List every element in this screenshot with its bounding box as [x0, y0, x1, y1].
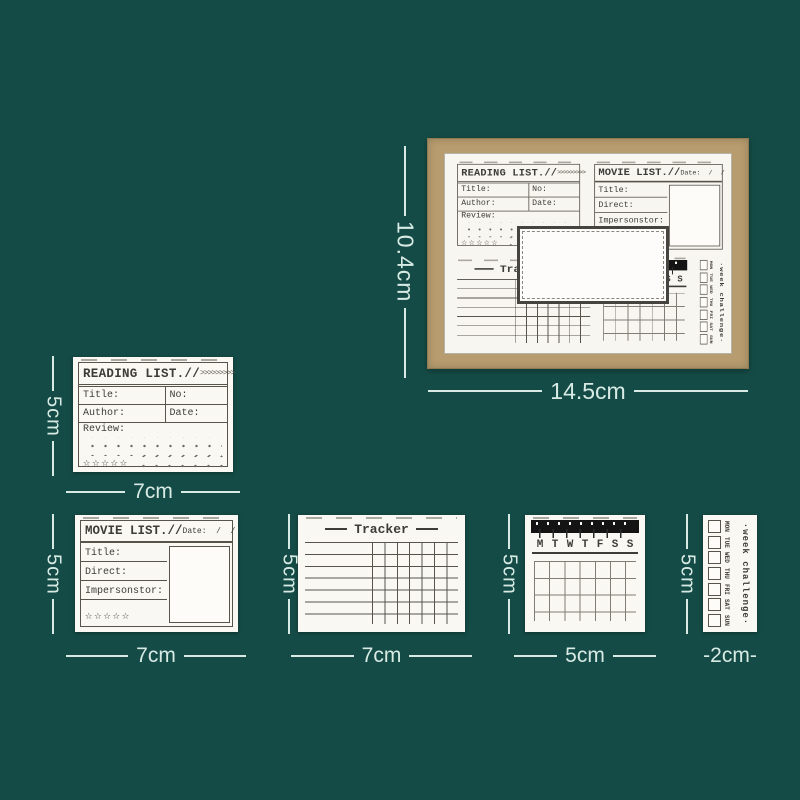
checkbox-icon [708, 520, 721, 533]
week-day-rail: MON TUE WED THU FRI [700, 260, 714, 345]
author-field-label: Author: [79, 405, 166, 422]
measure-line [686, 514, 688, 549]
title-field-label: Title: [458, 183, 529, 196]
measure-line [52, 356, 54, 391]
calendar-day-label: S [625, 539, 635, 551]
checkbox-icon [700, 322, 708, 332]
movie-list-title: MOVIE LIST.// [85, 524, 183, 538]
week-day-label: MON [723, 521, 730, 532]
arrows-icon: >>>>>>>>> [557, 169, 585, 176]
tracker-width-label: 7cm [354, 644, 410, 668]
checkbox-icon [708, 536, 721, 549]
blank-label-box [517, 226, 669, 304]
week-challenge-title: ·week challenge· [740, 522, 750, 624]
measure-line [291, 655, 354, 657]
reading-list-title: READING LIST.// [461, 167, 557, 178]
blank-label-box-inner-border [522, 231, 664, 299]
movie-list-stamp: MOVIE LIST.// Date: / / Title: Direct: I… [75, 515, 238, 632]
week-height-measure: 5cm [670, 514, 704, 634]
week-day-label: TUE [709, 273, 713, 282]
title-no-row: Title: No: [79, 387, 227, 405]
week-day-row: SAT [708, 598, 732, 611]
calendar-grid [534, 561, 636, 621]
title-field-label: Title: [81, 543, 167, 562]
checkbox-icon [708, 551, 721, 564]
week-day-label: WED [723, 552, 730, 563]
board-height-measure: 10.4cm [388, 146, 422, 378]
tracker-grid [305, 542, 458, 624]
tracker-grid-columns [372, 542, 458, 624]
calendar-binding-bar [531, 520, 639, 533]
week-day-row: TUE [700, 272, 714, 282]
movie-list-title: MOVIE LIST.// [598, 167, 680, 178]
checkbox-icon [700, 334, 708, 344]
tracker-height-measure: 5cm [272, 514, 306, 634]
checkbox-icon [708, 583, 721, 596]
calendar-day-label: S [676, 275, 684, 285]
measure-line [686, 599, 688, 634]
week-day-label: THU [723, 568, 730, 579]
calendar-day-label: T [550, 539, 560, 551]
calendar-day-label: M [535, 539, 545, 551]
checkbox-icon [708, 614, 721, 627]
measure-line [404, 146, 406, 216]
reading-width-measure: 7cm [66, 477, 240, 507]
week-challenge-stamp: MON TUE WED THU FRI SAT SUN ·week challe… [703, 515, 757, 632]
date-field-label: Date: / / [680, 169, 724, 176]
calendar-width-measure: 5cm [514, 641, 656, 671]
arrows-icon: >>>>>>>>> [200, 369, 234, 378]
board-height-label: 10.4cm [392, 216, 419, 307]
calendar-stamp: MTWTFSS [525, 515, 645, 632]
week-challenge-title: ·week challenge· [718, 262, 724, 343]
tracker-width-measure: 7cm [291, 641, 472, 671]
week-day-label: FRI [723, 584, 730, 595]
calendar-day-label: F [595, 539, 605, 551]
tracker-title: Tracker [354, 522, 409, 537]
week-day-row: FRI [708, 583, 732, 596]
measure-line [52, 514, 54, 549]
checkbox-icon [700, 297, 708, 307]
week-day-row: THU [700, 297, 714, 307]
tracker-height-label: 5cm [278, 549, 301, 600]
week-day-row: WED [708, 551, 732, 564]
display-board-frame: READING LIST.// >>>>>>>>> Title: No: Aut… [427, 138, 749, 369]
movie-width-measure: 7cm [66, 641, 246, 671]
no-field-label: No: [166, 387, 227, 404]
product-photo: READING LIST.// >>>>>>>>> Title: No: Aut… [0, 0, 800, 800]
measure-line [409, 655, 472, 657]
measure-line [184, 655, 246, 657]
reading-width-label: 7cm [125, 480, 181, 504]
reading-height-measure: 5cm [36, 356, 70, 476]
checkbox-icon [708, 567, 721, 580]
week-challenge-stamp: MON TUE WED THU FRI [697, 256, 728, 348]
week-height-label: 5cm [676, 549, 699, 600]
checkbox-icon [700, 309, 708, 319]
review-field-label: Review: [458, 211, 579, 222]
measure-line [428, 390, 542, 392]
title-field-label: Title: [79, 387, 166, 404]
week-day-rail: MON TUE WED THU FRI SAT SUN [708, 520, 732, 627]
star-rating-icons: ☆☆☆☆☆ [83, 455, 129, 470]
checkbox-icon [700, 285, 708, 295]
title-no-row: Title: No: [458, 183, 579, 197]
checkbox-icon [700, 272, 708, 282]
week-day-row: WED [700, 285, 714, 295]
measure-line [52, 599, 54, 634]
calendar-day-label: W [565, 539, 575, 551]
measure-line [52, 441, 54, 476]
author-date-row: Author: Date: [458, 197, 579, 211]
measure-line [66, 655, 128, 657]
calendar-width-label: 5cm [557, 644, 613, 668]
week-width-measure: -2cm- [690, 641, 770, 671]
calendar-day-label: T [580, 539, 590, 551]
calendar-height-label: 5cm [498, 549, 521, 600]
week-day-label: MON [709, 261, 713, 270]
no-field-label: No: [529, 183, 579, 196]
week-day-row: SAT [700, 322, 714, 332]
author-date-row: Author: Date: [79, 405, 227, 423]
date-field-label: Date: [529, 197, 579, 210]
week-day-label: TUE [723, 537, 730, 548]
week-day-label: SUN [709, 335, 713, 344]
week-day-row: TUE [708, 536, 732, 549]
dash-decoration [475, 268, 494, 270]
calendar-height-measure: 5cm [492, 514, 526, 634]
week-day-label: THU [709, 298, 713, 307]
week-day-row: MON [708, 520, 732, 533]
measure-line [508, 599, 510, 634]
week-day-row: SUN [700, 334, 714, 344]
measure-line [514, 655, 557, 657]
star-rating-icons: ☆☆☆☆☆ [461, 236, 499, 248]
impersonator-field-label: Impersonstor: [81, 581, 167, 600]
board-week-challenge-section: MON TUE WED THU FRI [697, 256, 728, 348]
week-day-row: FRI [700, 309, 714, 319]
week-day-row: MON [700, 260, 714, 270]
direct-field-label: Direct: [81, 562, 167, 581]
board-sheet: READING LIST.// >>>>>>>>> Title: No: Aut… [444, 153, 732, 354]
measure-line [288, 599, 290, 634]
reading-list-stamp: READING LIST.// >>>>>>>>> Title: No: Aut… [73, 357, 233, 472]
measure-line [66, 491, 125, 493]
reading-list-title: READING LIST.// [83, 367, 200, 381]
tracker-stamp: Tracker [298, 515, 465, 632]
poster-box [669, 185, 720, 247]
review-field-label: Review: [79, 423, 227, 437]
board-width-label: 14.5cm [542, 378, 633, 405]
star-rating-icons: ☆☆☆☆☆ [85, 608, 131, 623]
rating-row: ☆☆☆☆☆ [79, 456, 227, 469]
week-day-label: SAT [723, 599, 730, 610]
checkbox-icon [700, 260, 708, 270]
dash-decoration [416, 528, 438, 530]
week-day-label: SUN [723, 615, 730, 626]
measure-line [634, 390, 748, 392]
week-day-row: THU [708, 567, 732, 580]
movie-height-label: 5cm [42, 549, 65, 600]
week-day-label: SAT [709, 323, 713, 332]
week-day-label: FRI [709, 310, 713, 319]
author-field-label: Author: [458, 197, 529, 210]
title-field-label: Title: [595, 182, 667, 197]
date-field-label: Date: [166, 405, 227, 422]
measure-line [288, 514, 290, 549]
checkbox-icon [708, 598, 721, 611]
movie-height-measure: 5cm [36, 514, 70, 634]
reading-height-label: 5cm [42, 391, 65, 442]
calendar-day-label: S [610, 539, 620, 551]
week-day-label: WED [709, 286, 713, 295]
measure-line [613, 655, 656, 657]
dotted-lines [84, 437, 222, 456]
week-width-label: -2cm- [695, 644, 765, 668]
week-day-row: SUN [708, 614, 732, 627]
direct-field-label: Direct: [595, 198, 667, 213]
poster-box [169, 546, 230, 623]
movie-width-label: 7cm [128, 644, 184, 668]
measure-line [181, 491, 240, 493]
board-width-measure: 14.5cm [428, 376, 748, 406]
measure-line [404, 308, 406, 378]
date-field-label: Date: / / [183, 527, 236, 536]
dotted-lines [135, 456, 223, 469]
dash-decoration [325, 528, 347, 530]
measure-line [508, 514, 510, 549]
